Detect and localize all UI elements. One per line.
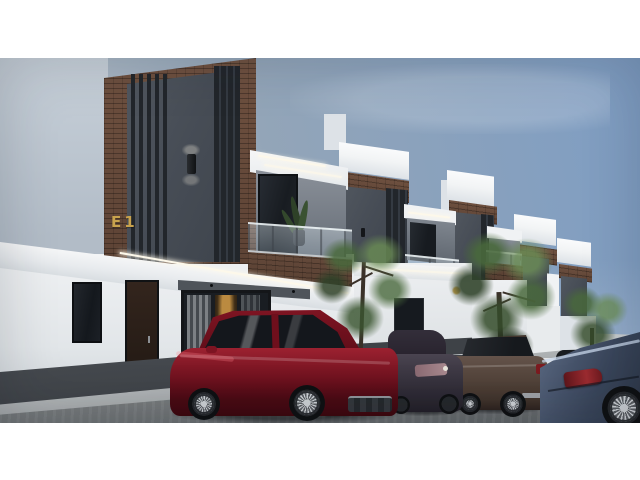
letterbox-top	[0, 0, 640, 58]
sconce-glow-down	[182, 174, 200, 186]
soffit-downlight-1	[210, 284, 213, 287]
unit-label: E1	[111, 213, 138, 231]
blue-sedan-wheel-rim	[610, 394, 638, 422]
red-sedan	[168, 308, 400, 420]
red-sedan-rear-rim	[295, 391, 319, 415]
soffit-downlight-2	[292, 290, 295, 293]
render-image: E1	[0, 0, 640, 480]
terrace-unit-1-slat-column-right	[214, 66, 240, 262]
terrace-unit-1-window	[72, 282, 102, 343]
blue-sedan	[540, 328, 640, 423]
terrace-unit-5-parapet	[557, 238, 591, 267]
red-sedan-mirror	[206, 346, 217, 353]
red-sedan-front-rim	[194, 394, 214, 414]
wall-sconce	[187, 154, 196, 174]
terrace-unit-1-slat-group-left	[131, 74, 169, 262]
letterbox-bottom	[0, 423, 640, 480]
red-sedan-diffuser	[348, 396, 392, 412]
terrace-unit-1-side-wall	[0, 58, 108, 258]
scene: E1	[0, 58, 640, 423]
door-handle	[148, 336, 150, 343]
